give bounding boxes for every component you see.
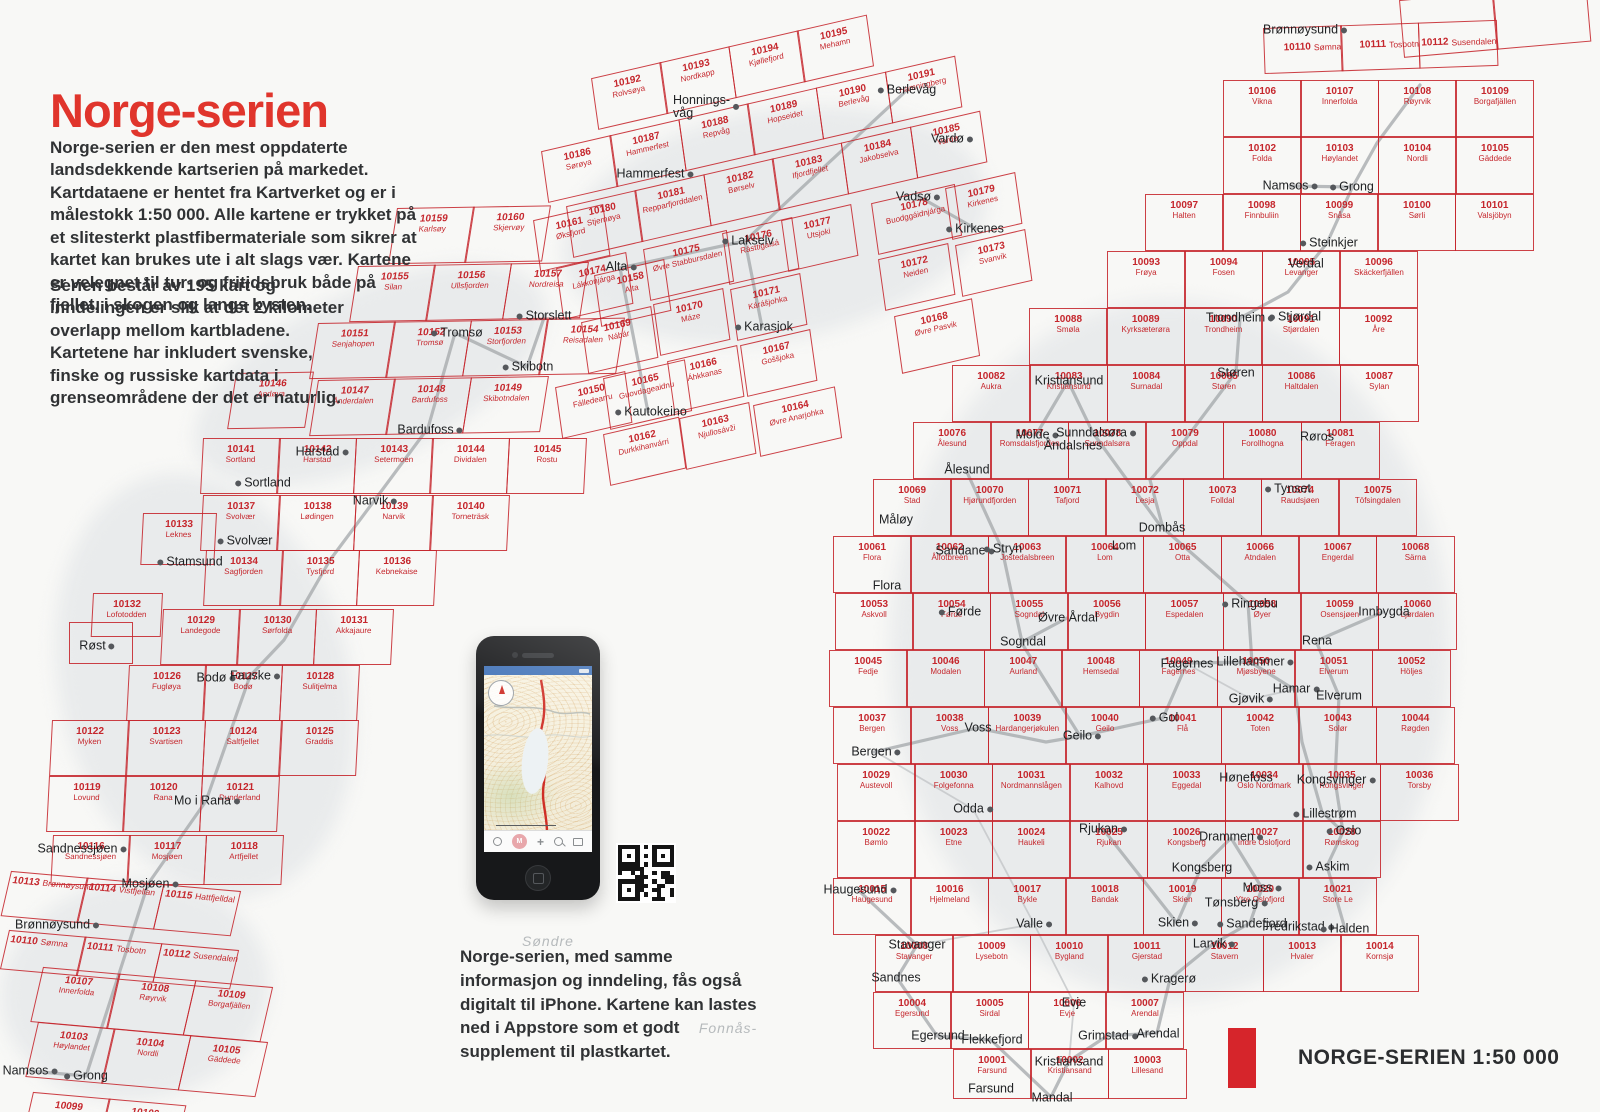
map-sheet-cell[interactable]: 10098Finnbuliin bbox=[1222, 194, 1301, 251]
map-sheet-cell[interactable]: 10013Hvaler bbox=[1263, 935, 1342, 992]
map-sheet-cell[interactable]: 10018Bandak bbox=[1065, 878, 1144, 935]
map-sheet-cell[interactable]: 10123Svartisen bbox=[125, 720, 206, 776]
map-sheet-cell[interactable]: 10096Skäckerfjällen bbox=[1339, 251, 1418, 308]
sheet-number: 10051 bbox=[1320, 656, 1348, 668]
map-sheet-cell[interactable]: 10184Jakobselva bbox=[841, 127, 918, 195]
map-sheet-cell[interactable]: 10173Svanvik bbox=[955, 229, 1032, 297]
sheet-number: 10073 bbox=[1209, 485, 1237, 497]
map-sheet-cell[interactable]: 10072Lesja bbox=[1105, 479, 1184, 536]
map-sheet-cell[interactable]: 10084Surnadal bbox=[1107, 365, 1186, 422]
legend-label: NORGE-SERIEN 1:50 000 bbox=[1298, 1046, 1559, 1070]
sheet-name: Ytre Oslofjord bbox=[1236, 896, 1285, 905]
map-sheet-cell[interactable]: 10194Kjøllefjord bbox=[728, 30, 805, 98]
sheet-name: Kornsjø bbox=[1366, 953, 1394, 962]
sheet-number: 10013 bbox=[1288, 941, 1316, 953]
map-sheet-cell[interactable]: 10063Jostedalsbreen bbox=[988, 536, 1067, 593]
sheet-name: Skäckerfjällen bbox=[1354, 269, 1404, 278]
map-sheet-cell[interactable]: 10108Røyrvik bbox=[106, 974, 196, 1036]
sheet-name: Kristiansund bbox=[1047, 383, 1091, 392]
sheet-name: Feragen bbox=[1325, 440, 1355, 449]
map-sheet-cell[interactable]: 10114Vistfjellan bbox=[76, 878, 164, 930]
phone-screen: M + bbox=[484, 666, 592, 852]
map-sheet-cell[interactable]: 10104Nordli bbox=[1378, 137, 1457, 194]
map-sheet-cell[interactable]: 10077Romsdalsfjorden bbox=[990, 422, 1069, 479]
map-sheet-cell[interactable]: 10092Åre bbox=[1339, 308, 1418, 365]
sheet-number: 10091 bbox=[1287, 314, 1315, 326]
map-sheet-cell[interactable]: 10148Bardufoss bbox=[385, 377, 472, 435]
sheet-name: Skjervøy bbox=[492, 223, 525, 232]
sheet-name: Mjøsbyene bbox=[1237, 668, 1276, 677]
map-sheet-cell[interactable] bbox=[1399, 0, 1499, 58]
map-sheet-cell[interactable]: 10054Førde bbox=[912, 593, 991, 650]
sheet-name: Sulitjelma bbox=[302, 683, 337, 692]
map-sheet-cell[interactable]: 10156Ullsfjorden bbox=[425, 263, 512, 321]
map-sheet-cell[interactable]: 10006Evje bbox=[1028, 992, 1107, 1049]
map-sheet-cell[interactable]: 10122Myken bbox=[49, 720, 130, 776]
sheet-name: Graddis bbox=[305, 738, 333, 747]
map-sheet-cell[interactable]: 10103Høylandet bbox=[25, 1022, 115, 1084]
sheet-name: Askvoll bbox=[861, 611, 886, 620]
sheet-number: 10128 bbox=[306, 671, 334, 683]
map-sheet-cell[interactable]: 10049Fagernes bbox=[1139, 650, 1218, 707]
sheet-name: Voss bbox=[941, 725, 958, 734]
sheet-number: 10136 bbox=[383, 556, 411, 568]
sheet-name: Jostedalsbreen bbox=[1000, 554, 1054, 563]
map-sheet-cell[interactable]: 10094Fosen bbox=[1184, 251, 1263, 308]
sheet-name: Narvik bbox=[382, 513, 405, 522]
map-sheet-cell[interactable]: 10090Trondheim bbox=[1184, 308, 1263, 365]
sheet-name: Dividalen bbox=[454, 456, 487, 465]
map-sheet-cell[interactable]: 10187Hammerfest bbox=[609, 119, 686, 187]
map-sheet-cell[interactable]: 10068Särna bbox=[1376, 536, 1455, 593]
page-title: Norge-serien bbox=[50, 83, 328, 138]
sheet-name: Lysebotn bbox=[976, 953, 1008, 962]
qr-code bbox=[616, 843, 676, 903]
map-sheet-cell[interactable]: 10038Voss bbox=[910, 707, 989, 764]
map-sheet-cell[interactable]: 10017Bykle bbox=[988, 878, 1067, 935]
map-sheet-cell[interactable]: 10168Øvre Pasvik bbox=[894, 298, 980, 374]
map-sheet-cell[interactable]: 10102Folda bbox=[1223, 137, 1302, 194]
map-sheet-cell[interactable]: 10065Otta bbox=[1143, 536, 1222, 593]
map-sheet-cell[interactable]: 10113Brønnøysund bbox=[0, 871, 88, 923]
sheet-name: Indre Oslofjord bbox=[1238, 839, 1290, 848]
map-sheet-cell[interactable]: 10046Modalen bbox=[906, 650, 985, 707]
map-sheet-cell[interactable]: 10028Rømskog bbox=[1302, 821, 1381, 878]
sheet-number: 10140 bbox=[457, 501, 485, 513]
map-sheet-cell[interactable]: 10040Geilo bbox=[1065, 707, 1144, 764]
map-sheet-cell[interactable]: 10050Mjøsbyene bbox=[1217, 650, 1296, 707]
map-sheet-cell[interactable]: 10135Tysfjord bbox=[279, 550, 360, 606]
map-sheet-cell[interactable]: 10128Sulitjelma bbox=[279, 665, 360, 721]
map-sheet-cell[interactable]: 10067Engerdal bbox=[1298, 536, 1377, 593]
map-sheet-cell[interactable]: 10097Halten bbox=[1145, 194, 1224, 251]
map-sheet-cell[interactable]: 10015Haugesund bbox=[833, 878, 912, 935]
sheet-number: 10057 bbox=[1171, 599, 1199, 611]
map-sheet-cell[interactable]: 10003Lillesand bbox=[1108, 1049, 1187, 1099]
map-sheet-cell[interactable] bbox=[1492, 0, 1592, 50]
map-sheet-cell[interactable]: 10004Egersund bbox=[873, 992, 952, 1049]
map-sheet-cell[interactable]: 10083Kristiansund bbox=[1029, 365, 1108, 422]
map-sheet-cell[interactable]: 10030Folgefonna bbox=[914, 764, 993, 821]
sheet-name: Otta bbox=[1175, 554, 1190, 563]
map-sheet-cell[interactable]: 10131Akkajaure bbox=[313, 609, 394, 665]
sheet-name: Myken bbox=[77, 738, 101, 747]
sheet-name: Nordli bbox=[136, 1048, 159, 1058]
map-sheet-cell[interactable]: 10160Skjervøy bbox=[464, 205, 551, 263]
sheet-name: Landegode bbox=[180, 627, 221, 636]
sheet-number: 10060 bbox=[1403, 599, 1431, 611]
map-sheet-cell[interactable]: 10012Stavern bbox=[1185, 935, 1264, 992]
map-sheet-cell[interactable]: 10055Sogndal bbox=[990, 593, 1069, 650]
map-sheet-cell[interactable]: 10005Sirdal bbox=[950, 992, 1029, 1049]
map-sheet-cell[interactable]: 10183Ifjordfjellet bbox=[772, 142, 849, 210]
sheet-name: Sørfolda bbox=[262, 627, 293, 636]
map-sheet-cell[interactable]: 10027Indre Oslofjord bbox=[1225, 821, 1304, 878]
sheet-number: 10134 bbox=[230, 556, 258, 568]
map-sheet-cell[interactable]: 10010Bygland bbox=[1030, 935, 1109, 992]
map-sheet-cell[interactable]: 10086Haltdalen bbox=[1262, 365, 1341, 422]
sheet-name: Elverum bbox=[1319, 668, 1348, 677]
sheet-number: 10106 bbox=[1248, 86, 1276, 98]
map-sheet-cell[interactable]: 10177Utsjoki bbox=[781, 204, 858, 272]
map-sheet-cell[interactable]: 10031Nordmannslågen bbox=[992, 764, 1071, 821]
map-sheet-cell[interactable]: 10157Nordreisa bbox=[502, 262, 589, 320]
map-sheet-cell[interactable]: 10138Lødingen bbox=[276, 495, 357, 551]
map-sheet-cell[interactable]: 10142Harstad bbox=[276, 438, 357, 494]
map-sheet-cell[interactable]: 10150Fálledearru bbox=[555, 371, 632, 439]
sheet-name: Røyrvik bbox=[1404, 98, 1431, 107]
map-sheet-cell[interactable]: 10009Lysebotn bbox=[952, 935, 1031, 992]
sheet-number: 10144 bbox=[457, 444, 485, 456]
map-sheet-cell[interactable]: 10179Kirkenes bbox=[945, 172, 1022, 240]
map-sheet-cell[interactable]: 10070Hjørundfjorden bbox=[950, 479, 1029, 536]
sheet-number: 10020 bbox=[1246, 884, 1274, 896]
map-sheet-cell[interactable]: 10144Dividalen bbox=[430, 438, 511, 494]
sheet-number: 10016 bbox=[936, 884, 964, 896]
sheet-number: 10126 bbox=[153, 671, 181, 683]
map-sheet-cell[interactable]: 10039Hardangerjøkulen bbox=[988, 707, 1067, 764]
sheet-number: 10115 bbox=[164, 889, 194, 903]
map-sheet-cell[interactable]: 10141Sortland bbox=[200, 438, 281, 494]
sheet-name: Leknes bbox=[165, 531, 191, 540]
sheet-number: 10105 bbox=[1481, 143, 1509, 155]
sheet-name: Etne bbox=[945, 839, 961, 848]
sheet-name: Ålesund bbox=[938, 440, 967, 449]
map-sheet-cell[interactable]: 10066Atndalen bbox=[1221, 536, 1300, 593]
map-sheet-cell[interactable]: 10048Hemsedal bbox=[1061, 650, 1140, 707]
map-sheet-cell[interactable]: 10100Sørli bbox=[100, 1099, 187, 1112]
map-sheet-cell[interactable]: 10058Øyer bbox=[1223, 593, 1302, 650]
map-sheet-cell[interactable]: 10089Kyrksæterøra bbox=[1106, 308, 1185, 365]
map-sheet-cell[interactable]: 10060Ljørdalen bbox=[1378, 593, 1457, 650]
sheet-number: 10116 bbox=[77, 841, 105, 853]
map-sheet-cell[interactable]: 10029Austevoll bbox=[837, 764, 916, 821]
map-sheet-cell[interactable]: 10042Toten bbox=[1221, 707, 1300, 764]
phone-toolbar: M + bbox=[484, 830, 592, 852]
map-sheet-cell[interactable]: 10189Hopseidet bbox=[747, 87, 824, 155]
sheet-name: Høylandet bbox=[52, 1041, 90, 1053]
sheet-number: 10023 bbox=[940, 827, 968, 839]
map-sheet-cell[interactable]: 10127Bodø bbox=[202, 665, 283, 721]
map-sheet-cell[interactable]: 10104Nordli bbox=[101, 1029, 191, 1091]
sheet-number: 10137 bbox=[227, 501, 255, 513]
map-sheet-cell[interactable]: 10078Sunndalsøra bbox=[1068, 422, 1147, 479]
map-sheet-cell[interactable]: 10105Gäddede bbox=[178, 1035, 268, 1097]
map-sheet-cell[interactable]: 10134Sagfjorden bbox=[203, 550, 284, 606]
map-sheet-cell[interactable]: 10110Sømna bbox=[1263, 25, 1344, 74]
sheet-name: Romsdalsfjorden bbox=[1000, 440, 1060, 449]
map-sheet-cell[interactable]: 10032Kalhovd bbox=[1069, 764, 1148, 821]
sheet-number: 10058 bbox=[1248, 599, 1276, 611]
map-sheet-cell[interactable]: 10053Askvoll bbox=[835, 593, 914, 650]
map-sheet-cell[interactable]: 10019Skien bbox=[1143, 878, 1222, 935]
sheet-name: Frøya bbox=[1136, 269, 1157, 278]
map-sheet-cell[interactable]: 10107Innerfolda bbox=[30, 967, 120, 1029]
sheet-number: 10096 bbox=[1365, 257, 1393, 269]
map-sheet-cell[interactable]: 10181Repparfjorddalen bbox=[634, 174, 711, 242]
map-sheet-cell[interactable]: 10071Tafjord bbox=[1028, 479, 1107, 536]
map-sheet-cell[interactable]: 10117Mosjøen bbox=[127, 835, 208, 885]
map-sheet-cell[interactable]: 10069Stad bbox=[873, 479, 952, 536]
map-sheet-cell[interactable]: 10186Sørøya bbox=[541, 135, 618, 203]
sheet-name: Rjukan bbox=[1096, 839, 1121, 848]
sheet-number: 10145 bbox=[533, 444, 561, 456]
map-sheet-cell[interactable]: 10130Sørfolda bbox=[236, 609, 317, 665]
sheet-name: Ljørdalen bbox=[1401, 611, 1434, 620]
sheet-number: 10033 bbox=[1173, 770, 1201, 782]
sheet-number: 10122 bbox=[76, 726, 104, 738]
map-sheet-cell[interactable]: 10007Arendal bbox=[1105, 992, 1184, 1049]
map-sheet-cell[interactable]: 10024Haukeli bbox=[992, 821, 1071, 878]
map-sheet-cell[interactable]: 10044Røgden bbox=[1376, 707, 1455, 764]
map-sheet-cell[interactable]: 10047Aurland bbox=[984, 650, 1063, 707]
map-sheet-cell[interactable]: 10057Espedalen bbox=[1145, 593, 1224, 650]
sheet-name: Fagernes bbox=[1162, 668, 1196, 677]
map-sheet-cell[interactable]: 10164Øvre Anarjohka bbox=[753, 386, 842, 457]
map-sheet-cell[interactable]: 10075Töfsingdalen bbox=[1338, 479, 1417, 536]
sheet-number: 10130 bbox=[263, 615, 291, 627]
sheet-name: Haltdalen bbox=[1285, 383, 1319, 392]
map-sheet-cell[interactable]: 10037Bergen bbox=[833, 707, 912, 764]
sheet-number: 10107 bbox=[1326, 86, 1354, 98]
legend: NORGE-SERIEN 1:50 000 bbox=[1228, 1028, 1559, 1088]
map-sheet-cell[interactable]: 10100Sørli bbox=[1377, 194, 1456, 251]
map-sheet-cell[interactable]: 10188Repvåg bbox=[678, 103, 755, 171]
map-sheet-cell[interactable]: 10095Levanger bbox=[1262, 251, 1341, 308]
map-sheet-cell[interactable]: 10073Folldal bbox=[1183, 479, 1262, 536]
sheet-number: 10098 bbox=[1248, 200, 1276, 212]
sheet-name: Stavern bbox=[1211, 953, 1239, 962]
map-sheet-cell[interactable]: 10153Storfjorden bbox=[462, 319, 549, 377]
sheet-number: 10038 bbox=[936, 713, 964, 725]
sheet-name: Bygdin bbox=[1095, 611, 1119, 620]
map-sheet-cell[interactable]: 10101Valsjöbyn bbox=[1455, 194, 1534, 251]
sheet-name: Särna bbox=[1405, 554, 1426, 563]
map-sheet-cell[interactable]: 10182Børselv bbox=[703, 158, 780, 226]
sheet-name: Haukeli bbox=[1018, 839, 1045, 848]
map-sheet-cell[interactable]: 10074Raudsjøen bbox=[1261, 479, 1340, 536]
sheet-number: 10117 bbox=[154, 841, 182, 853]
sheet-name: Store Le bbox=[1323, 896, 1353, 905]
map-sheet-cell[interactable]: 10185Vardø bbox=[910, 111, 987, 179]
map-sheet-cell[interactable]: 10190Berlevåg bbox=[816, 72, 893, 140]
map-sheet-cell[interactable]: 10124Saltfjellet bbox=[202, 720, 283, 776]
map-sheet-cell[interactable]: 10061Flora bbox=[833, 536, 912, 593]
map-sheet-cell[interactable]: 10099Snåsa bbox=[24, 1092, 111, 1112]
sheet-name: Tafjord bbox=[1055, 497, 1079, 506]
map-sheet-cell[interactable]: 10093Frøya bbox=[1107, 251, 1186, 308]
map-sheet-cell[interactable]: 10171Kárášjohka bbox=[730, 273, 807, 341]
map-sheet-cell[interactable]: 10087Sylan bbox=[1340, 365, 1419, 422]
map-sheet-cell[interactable]: 10109Borgafjällen bbox=[183, 980, 273, 1042]
sheet-name: Innerfolda bbox=[1322, 98, 1358, 107]
map-sheet-cell[interactable]: 10140Torneträsk bbox=[430, 495, 511, 551]
map-sheet-cell[interactable]: 10149Skibotndalen bbox=[462, 376, 549, 434]
sheet-number: 10112 bbox=[162, 948, 192, 962]
map-sheet-cell[interactable]: 10035Kongsvinger bbox=[1302, 764, 1381, 821]
sheet-name: Vikna bbox=[1252, 98, 1272, 107]
map-sheet-cell[interactable]: 10109Borgafjällen bbox=[1455, 80, 1534, 137]
map-sheet-cell[interactable]: 10193Nordkapp bbox=[659, 46, 736, 114]
sheet-number: 10082 bbox=[977, 371, 1005, 383]
map-sheet-cell[interactable]: 10119Lovund bbox=[46, 776, 127, 832]
map-sheet-cell[interactable]: 10041Flå bbox=[1143, 707, 1222, 764]
map-sheet-cell[interactable]: 10023Etne bbox=[914, 821, 993, 878]
map-sheet-cell[interactable]: 10081Feragen bbox=[1301, 422, 1380, 479]
map-sheet-cell[interactable]: 10152Tromsø bbox=[385, 320, 472, 378]
sheet-name: Sirdal bbox=[979, 1010, 999, 1019]
map-sheet-cell[interactable]: 10167Goššjoka bbox=[740, 329, 817, 397]
map-sheet-cell[interactable]: 10129Landegode bbox=[160, 609, 241, 665]
map-sheet-cell[interactable]: 10195Mehamn bbox=[797, 14, 874, 82]
map-sheet-cell[interactable]: 10082Aukra bbox=[952, 365, 1031, 422]
map-sheet-cell[interactable]: 10016Hjelmeland bbox=[910, 878, 989, 935]
sheet-number: 10032 bbox=[1095, 770, 1123, 782]
map-sheet-cell[interactable]: 10139Narvik bbox=[353, 495, 434, 551]
sheet-number: 10061 bbox=[858, 542, 886, 554]
map-sheet-cell[interactable]: 10026Kongsberg bbox=[1147, 821, 1226, 878]
sheet-number: 10120 bbox=[149, 782, 177, 794]
map-sheet-cell[interactable]: 10108Røyrvik bbox=[1378, 80, 1457, 137]
sheet-name: Aukra bbox=[981, 383, 1002, 392]
map-sheet-cell[interactable]: 10080Forollhogna bbox=[1223, 422, 1302, 479]
sheet-name: Bergen bbox=[859, 725, 885, 734]
map-sheet-cell[interactable]: 10103Høylandet bbox=[1300, 137, 1379, 194]
map-sheet-cell[interactable]: 10099Snåsa bbox=[1300, 194, 1379, 251]
map-sheet-cell[interactable]: 10062Ålfotbreen bbox=[910, 536, 989, 593]
map-sheet-cell[interactable]: 10052Höljes bbox=[1372, 650, 1451, 707]
map-sheet-cell[interactable]: 10021Store Le bbox=[1298, 878, 1377, 935]
sheet-name: Aurland bbox=[1010, 668, 1038, 677]
map-sheet-cell[interactable]: 10088Smøla bbox=[1029, 308, 1108, 365]
sheet-name: Støren bbox=[1212, 383, 1236, 392]
sheet-name: Borgafjällen bbox=[207, 999, 251, 1011]
sheet-number: 10074 bbox=[1286, 485, 1314, 497]
map-sheet-cell[interactable]: 10051Elverum bbox=[1294, 650, 1373, 707]
sheet-name: Eggedal bbox=[1172, 782, 1201, 791]
map-sheet-cell[interactable]: 10121Dunderland bbox=[199, 776, 280, 832]
sheet-number: 10030 bbox=[940, 770, 968, 782]
map-sheet-cell[interactable]: 10076Ålesund bbox=[913, 422, 992, 479]
map-sheet-cell[interactable]: 10079Oppdal bbox=[1145, 422, 1224, 479]
map-sheet-cell[interactable]: 10120Rana bbox=[122, 776, 203, 832]
map-sheet-cell[interactable]: 10025Rjukan bbox=[1069, 821, 1148, 878]
map-sheet-cell[interactable]: 10125Graddis bbox=[279, 720, 360, 776]
sheet-number: 10109 bbox=[1481, 86, 1509, 98]
sheet-number: 10142 bbox=[303, 444, 331, 456]
map-sheet-cell[interactable]: 10118Artfjellet bbox=[203, 835, 284, 885]
sheet-name: Gäddede bbox=[207, 1054, 242, 1066]
sheet-number: 10066 bbox=[1246, 542, 1274, 554]
map-sheet-cell[interactable]: 10091Stjørdalen bbox=[1261, 308, 1340, 365]
sheet-name: Borgafjällen bbox=[1474, 98, 1516, 107]
map-sheet-cell[interactable] bbox=[69, 622, 133, 664]
map-sheet-cell[interactable]: 10106Vikna bbox=[1223, 80, 1302, 137]
map-sheet-cell[interactable]: 10145Rostu bbox=[506, 438, 587, 494]
map-sheet-cell[interactable]: 10045Fedje bbox=[829, 650, 908, 707]
sheet-number: 10027 bbox=[1250, 827, 1278, 839]
sheet-name: Oslo Nordmark bbox=[1237, 782, 1291, 791]
map-sheet-cell[interactable]: 10036Torsby bbox=[1380, 764, 1459, 821]
sheet-name: Skien bbox=[1173, 896, 1193, 905]
route-icon bbox=[493, 837, 502, 846]
map-sheet-cell[interactable]: 10033Eggedal bbox=[1147, 764, 1226, 821]
map-sheet-cell[interactable]: 10001Farsund bbox=[953, 1049, 1032, 1099]
map-sheet-cell[interactable]: 10014Kornsjø bbox=[1340, 935, 1419, 992]
sheet-name: Toten bbox=[1250, 725, 1270, 734]
sheet-number: 10081 bbox=[1326, 428, 1354, 440]
sheet-name: Valsjöbyn bbox=[1478, 212, 1512, 221]
map-sheet-cell[interactable]: 10143Setermoen bbox=[353, 438, 434, 494]
sheet-name: Halten bbox=[1173, 212, 1196, 221]
sheet-name: Kebnekaise bbox=[376, 568, 418, 577]
map-sheet-cell[interactable]: 10107Innerfolda bbox=[1300, 80, 1379, 137]
map-sheet-cell[interactable]: 10115Hattfjelldal bbox=[153, 884, 241, 936]
sheet-number: 10069 bbox=[898, 485, 926, 497]
sheet-number: 10029 bbox=[862, 770, 890, 782]
sheet-name: Kyrksæterøra bbox=[1121, 326, 1169, 335]
map-sheet-cell[interactable]: 10059Osensjøen bbox=[1300, 593, 1379, 650]
map-sheet-cell[interactable]: 10191Hamningberg bbox=[885, 56, 962, 124]
map-sheet-cell[interactable]: 10056Bygdin bbox=[1067, 593, 1146, 650]
map-sheet-cell[interactable]: 10136Kebnekaise bbox=[356, 550, 437, 606]
map-sheet-cell[interactable]: 10064Lom bbox=[1065, 536, 1144, 593]
map-sheet-cell[interactable]: 10008Stavanger bbox=[875, 935, 954, 992]
sheet-number: 10111 bbox=[85, 941, 114, 955]
sheet-number: 10048 bbox=[1087, 656, 1115, 668]
map-sheet-cell[interactable]: 10126Fugløya bbox=[126, 665, 207, 721]
map-sheet-cell[interactable]: 10163Njullosávži bbox=[679, 402, 756, 470]
sheet-number: 10084 bbox=[1132, 371, 1160, 383]
sheet-number: 10108 bbox=[1403, 86, 1431, 98]
sheet-name: Máze bbox=[681, 311, 701, 324]
iphone-paragraph: Norge-serien, med samme informasjon og i… bbox=[460, 945, 760, 1064]
map-sheet-cell[interactable]: 10192Rolvsøya bbox=[591, 62, 668, 130]
map-sheet-cell[interactable]: 10085Støren bbox=[1184, 365, 1263, 422]
map-sheet-cell[interactable]: 10105Gäddede bbox=[1455, 137, 1534, 194]
sheet-name: Rømskog bbox=[1325, 839, 1359, 848]
map-sheet-cell[interactable]: 10043Solør bbox=[1298, 707, 1377, 764]
map-sheet-cell[interactable]: 10034Oslo Nordmark bbox=[1225, 764, 1304, 821]
map-sheet-cell[interactable]: 10011Gjerstad bbox=[1107, 935, 1186, 992]
map-sheet-cell[interactable]: 10020Ytre Oslofjord bbox=[1221, 878, 1300, 935]
map-sheet-cell[interactable]: 10154Reisadalen bbox=[539, 318, 626, 376]
map-sheet-cell[interactable]: 10022Bømlo bbox=[837, 821, 916, 878]
map-sheet-cell[interactable]: 10172Neiden bbox=[878, 243, 955, 311]
sheet-name: Lofotodden bbox=[106, 611, 147, 620]
map-sheet-cell[interactable]: 10002Kristiansand bbox=[1030, 1049, 1109, 1099]
sheet-number: 10047 bbox=[1009, 656, 1037, 668]
